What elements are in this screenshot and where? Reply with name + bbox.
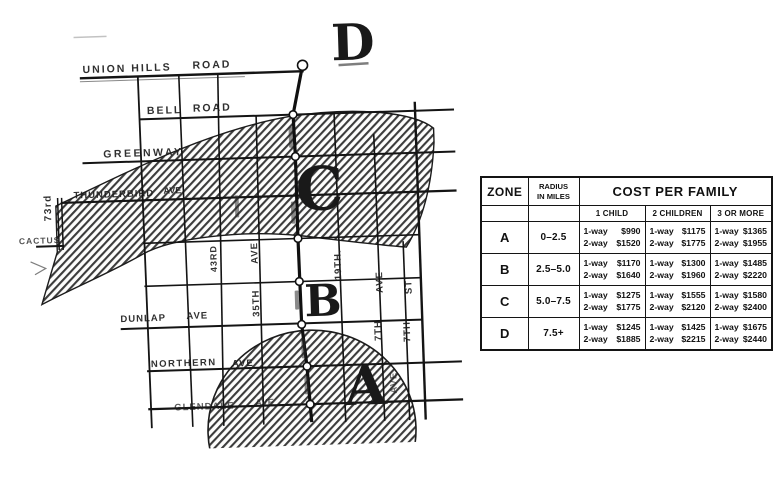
73rd-label: 73rd (42, 194, 54, 221)
35th-ave-suffix: AVE (249, 242, 261, 264)
cost-cell: 1-way$1275 2-way$1775 (579, 286, 645, 318)
table-row-zone-b: B 2.5–5.0 1-way$1170 2-way$1640 1-way$13… (481, 254, 772, 286)
table-header-radius: RADIUS IN MILES (528, 177, 579, 206)
union-hills-label: UNION HILLS (82, 61, 171, 76)
way-label: 1-way (715, 226, 739, 237)
price: $2440 (743, 334, 767, 345)
cost-cell: 1-way$1365 2-way$1955 (710, 222, 772, 254)
scan-artifact-dash (74, 36, 107, 37)
price: $1365 (743, 226, 767, 237)
7th-st-suffix: ST (403, 280, 414, 294)
dunlap-label: DUNLAP (120, 313, 166, 325)
cost-cell: 1-way$1425 2-way$2215 (645, 318, 710, 351)
way-label: 2-way (715, 270, 739, 281)
way-label: 1-way (650, 226, 674, 237)
way-label: 2-way (584, 270, 608, 281)
zone-a-label: A (343, 353, 389, 418)
page: UNION HILLS ROAD BELL ROAD GREENWAY THUN… (0, 0, 780, 479)
price: $1955 (743, 238, 767, 249)
price: $2120 (681, 302, 705, 313)
way-label: 1-way (715, 258, 739, 269)
subheader-3-or-more: 3 OR MORE (710, 206, 772, 222)
price: $2220 (743, 270, 767, 281)
radius-header-line2: IN MILES (529, 192, 579, 201)
price: $1170 (617, 258, 641, 269)
cactus-label: CACTUS (19, 235, 61, 246)
way-label: 2-way (584, 334, 608, 345)
zone-cell: B (481, 254, 528, 286)
price: $1485 (743, 258, 767, 269)
union-hills-road-suffix: ROAD (192, 59, 231, 72)
radius-cell: 7.5+ (528, 318, 579, 351)
way-label: 1-way (584, 258, 608, 269)
price: $1775 (681, 238, 705, 249)
empty-cell (528, 206, 579, 222)
price: $1885 (616, 334, 640, 345)
cactus-line (36, 246, 64, 247)
bell-label: BELL (147, 104, 183, 117)
greenway-label: GREENWAY (103, 146, 184, 161)
cost-cell: 1-way$1555 2-way$2120 (645, 286, 710, 318)
radius-header-line1: RADIUS (529, 182, 579, 191)
radius-cell: 5.0–7.5 (528, 286, 579, 318)
price: $1960 (681, 270, 705, 281)
dunlap-ave-suffix: AVE (186, 310, 208, 322)
way-label: 1-way (715, 322, 739, 333)
cost-cell: 1-way$1580 2-way$2400 (710, 286, 772, 318)
table-row-zone-d: D 7.5+ 1-way$1245 2-way$1885 1-way$1425 … (481, 318, 772, 351)
way-label: 1-way (650, 258, 674, 269)
bell-road-suffix: ROAD (193, 102, 232, 115)
table-header-zone: ZONE (481, 177, 528, 206)
7th-st-label: 7TH (402, 321, 414, 342)
way-label: 1-way (650, 322, 674, 333)
way-label: 2-way (650, 302, 674, 313)
table-header-cost: COST PER FAMILY (579, 177, 772, 206)
7th-ave-suffix: AVE (374, 271, 386, 293)
zone-cell: A (481, 222, 528, 254)
way-label: 2-way (715, 302, 739, 313)
way-label: 2-way (584, 238, 608, 249)
price: $1640 (616, 270, 640, 281)
zone-c-label: C (294, 154, 344, 225)
way-label: 2-way (650, 238, 674, 249)
35th-label: 35TH (251, 289, 263, 317)
7th-ave-suffix-2: AVE (388, 372, 400, 394)
price: $1275 (616, 290, 640, 301)
way-label: 2-way (584, 302, 608, 313)
cost-cell: 1-way$1675 2-way$2440 (710, 318, 772, 351)
price: $1425 (681, 322, 705, 333)
table-row-zone-a: A 0–2.5 1-way$990 2-way$1520 1-way$1175 … (481, 222, 772, 254)
way-label: 1-way (584, 226, 608, 237)
subheader-2-children: 2 CHILDREN (645, 206, 710, 222)
way-label: 1-way (650, 290, 674, 301)
glendale-ave-suffix: AVE (255, 397, 274, 409)
cost-cell: 1-way$1485 2-way$2220 (710, 254, 772, 286)
price: $1300 (681, 258, 705, 269)
zone-b-label: B (304, 275, 343, 327)
radius-cell: 2.5–5.0 (528, 254, 579, 286)
glendale-label: GLENDALE (174, 401, 235, 414)
empty-cell (481, 206, 528, 222)
zone-cell: C (481, 286, 528, 318)
subheader-1-child: 1 CHILD (579, 206, 645, 222)
price: $2400 (743, 302, 767, 313)
43rd-label: 43RD (208, 245, 219, 272)
cost-cell: 1-way$1300 2-way$1960 (645, 254, 710, 286)
way-label: 2-way (650, 270, 674, 281)
way-label: 1-way (584, 322, 608, 333)
scan-scribble (31, 261, 46, 274)
cost-cell: 1-way$990 2-way$1520 (579, 222, 645, 254)
cost-cell: 1-way$1170 2-way$1640 (579, 254, 645, 286)
price: $1675 (743, 322, 767, 333)
price: $1555 (681, 290, 705, 301)
price: $1175 (682, 226, 706, 237)
price: $2215 (681, 334, 705, 345)
way-label: 2-way (715, 334, 739, 345)
price: $1245 (616, 322, 640, 333)
radius-cell: 0–2.5 (528, 222, 579, 254)
zone-map: UNION HILLS ROAD BELL ROAD GREENWAY THUN… (0, 0, 470, 479)
northern-ave-suffix: AVE (232, 358, 254, 370)
way-label: 2-way (715, 238, 739, 249)
price: $1520 (616, 238, 640, 249)
7th-ave-label: 7TH (373, 320, 385, 341)
zone-cell: D (481, 318, 528, 351)
vertical-street-2 (179, 75, 193, 427)
way-label: 1-way (715, 290, 739, 301)
price: $990 (621, 226, 640, 237)
price: $1580 (743, 290, 767, 301)
thunderbird-ave-suffix: AVE (163, 185, 181, 196)
cost-cell: 1-way$1245 2-way$1885 (579, 318, 645, 351)
price: $1775 (616, 302, 640, 313)
table-row-zone-c: C 5.0–7.5 1-way$1275 2-way$1775 1-way$15… (481, 286, 772, 318)
zone-cost-table: ZONE RADIUS IN MILES COST PER FAMILY 1 C… (480, 176, 772, 351)
zone-shapes (36, 109, 446, 479)
way-label: 2-way (650, 334, 674, 345)
way-label: 1-way (584, 290, 608, 301)
northern-label: NORTHERN (151, 357, 217, 370)
cost-cell: 1-way$1175 2-way$1775 (645, 222, 710, 254)
